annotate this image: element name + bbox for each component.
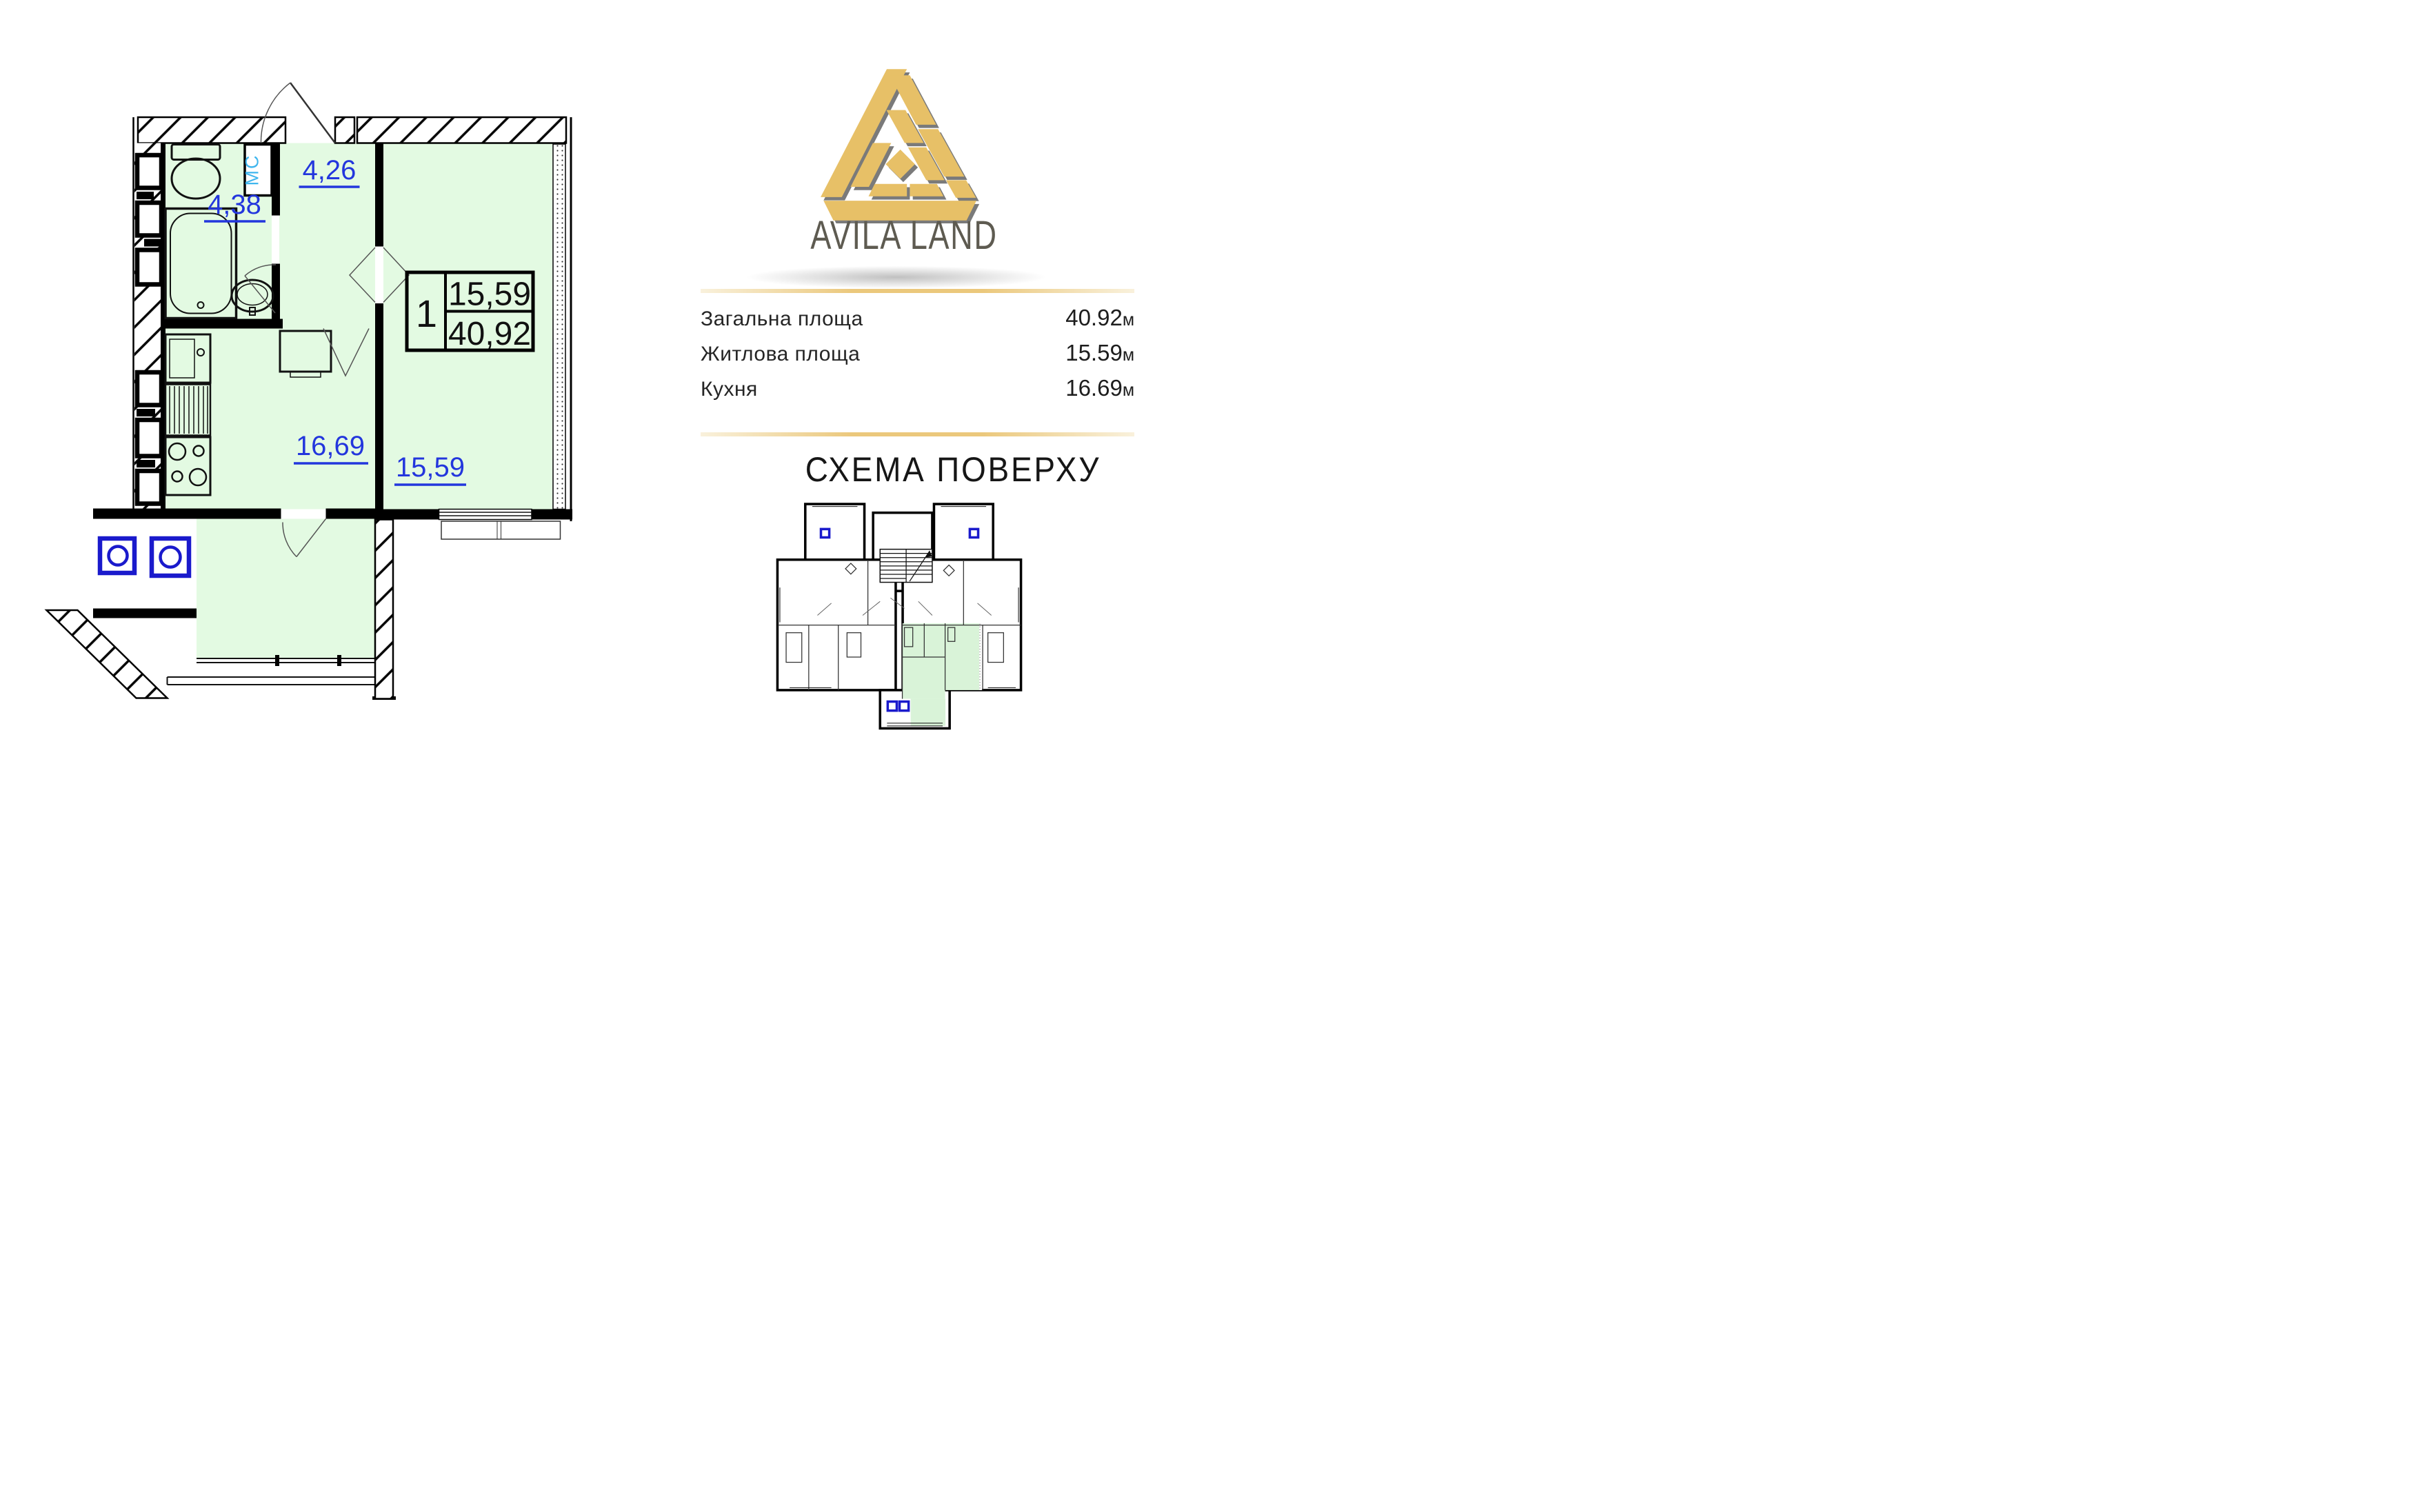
kitchen-area-label: 16,69 [296,431,365,461]
gold-divider-bottom [701,432,1134,436]
brand-shadow-decor [696,262,1096,292]
stat-label: Житлова площа [701,343,860,366]
avila-land-logo-icon [812,66,985,223]
insulated-wall [553,117,571,521]
gold-divider-top [701,289,1134,293]
apartment-floor-plan: 1 15,59 40,92 4,26 4,38 16,69 15,59 МС [34,69,579,700]
apartment-stats: Загальна площа 40.92м Житлова площа 15.5… [701,305,1134,410]
stat-value: 15.59м [1065,340,1134,366]
floor-scheme-title: СХЕМА ПОВЕРХУ [763,450,1143,490]
stat-value: 16.69м [1065,375,1134,401]
unit-living-area: 15,59 [448,276,531,313]
stat-row-living: Житлова площа 15.59м [701,340,1134,375]
hallway-area-label: 4,26 [303,155,357,185]
stat-value: 40.92м [1065,305,1134,331]
vent-shaft-icons [100,538,189,576]
stairs-icon [880,550,932,583]
balcony-glazing [168,655,388,685]
stat-row-kitchen: Кухня 16.69м [701,375,1134,410]
unit-rooms-count: 1 [416,292,437,335]
brand-name: AVILA LAND [783,212,1025,259]
floor-scheme-plan [775,501,1023,734]
unit-total-area: 40,92 [448,316,531,352]
scheme-highlighted-apartment [903,623,979,726]
scheme-insulation-strip [979,623,982,690]
scheme-building-outline [777,504,1021,728]
stat-row-total: Загальна площа 40.92м [701,305,1134,340]
living-area-label: 15,59 [396,452,465,483]
stat-label: Кухня [701,378,758,401]
stat-label: Загальна площа [701,308,863,331]
washer-label: МС [242,154,263,186]
bathroom-area-label: 4,38 [208,190,261,220]
